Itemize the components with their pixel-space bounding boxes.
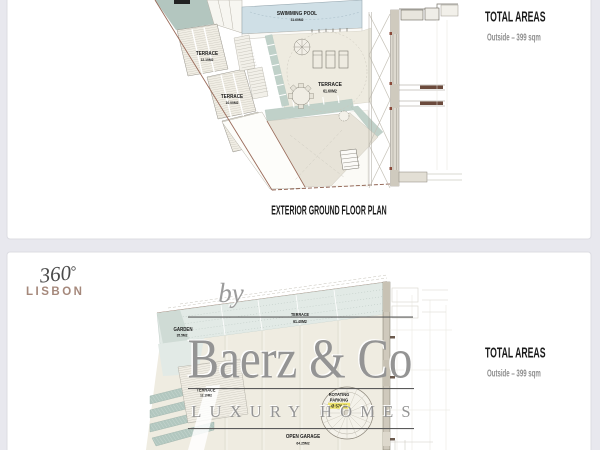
svg-text:TERRACE: TERRACE — [318, 82, 342, 88]
svg-text:31.60M2: 31.60M2 — [291, 18, 304, 22]
svg-text:TERRACE: TERRACE — [291, 312, 309, 317]
svg-text:EXTERIOR GROUND FLOOR PLAN: EXTERIOR GROUND FLOOR PLAN — [271, 205, 386, 219]
svg-text:TOTAL AREAS: TOTAL AREAS — [485, 344, 546, 361]
svg-text:LUXURY HOMES: LUXURY HOMES — [191, 402, 419, 421]
svg-text:10.00M2: 10.00M2 — [226, 101, 239, 105]
svg-text:OPEN GARAGE: OPEN GARAGE — [286, 434, 321, 440]
svg-text:TERRACE: TERRACE — [221, 94, 244, 100]
svg-text:360: 360 — [37, 260, 72, 287]
svg-text:by: by — [218, 278, 244, 308]
svg-text:LISBON: LISBON — [26, 286, 84, 298]
svg-text:61.40M2: 61.40M2 — [293, 319, 307, 324]
svg-text:64.25M2: 64.25M2 — [296, 441, 309, 445]
svg-text:Baerz & Co: Baerz & Co — [188, 329, 413, 391]
svg-text:TERRACE: TERRACE — [196, 51, 219, 57]
svg-text:12.10M2: 12.10M2 — [201, 58, 214, 62]
svg-text:61.60M2: 61.60M2 — [323, 88, 337, 93]
svg-text:Outside – 399 sqm: Outside – 399 sqm — [487, 368, 541, 379]
svg-text:SWIMMING POOL: SWIMMING POOL — [277, 11, 318, 17]
svg-text:12.10M2: 12.10M2 — [200, 393, 212, 397]
svg-text:TOTAL AREAS: TOTAL AREAS — [485, 8, 546, 25]
svg-text:Outside – 399 sqm: Outside – 399 sqm — [487, 32, 541, 43]
